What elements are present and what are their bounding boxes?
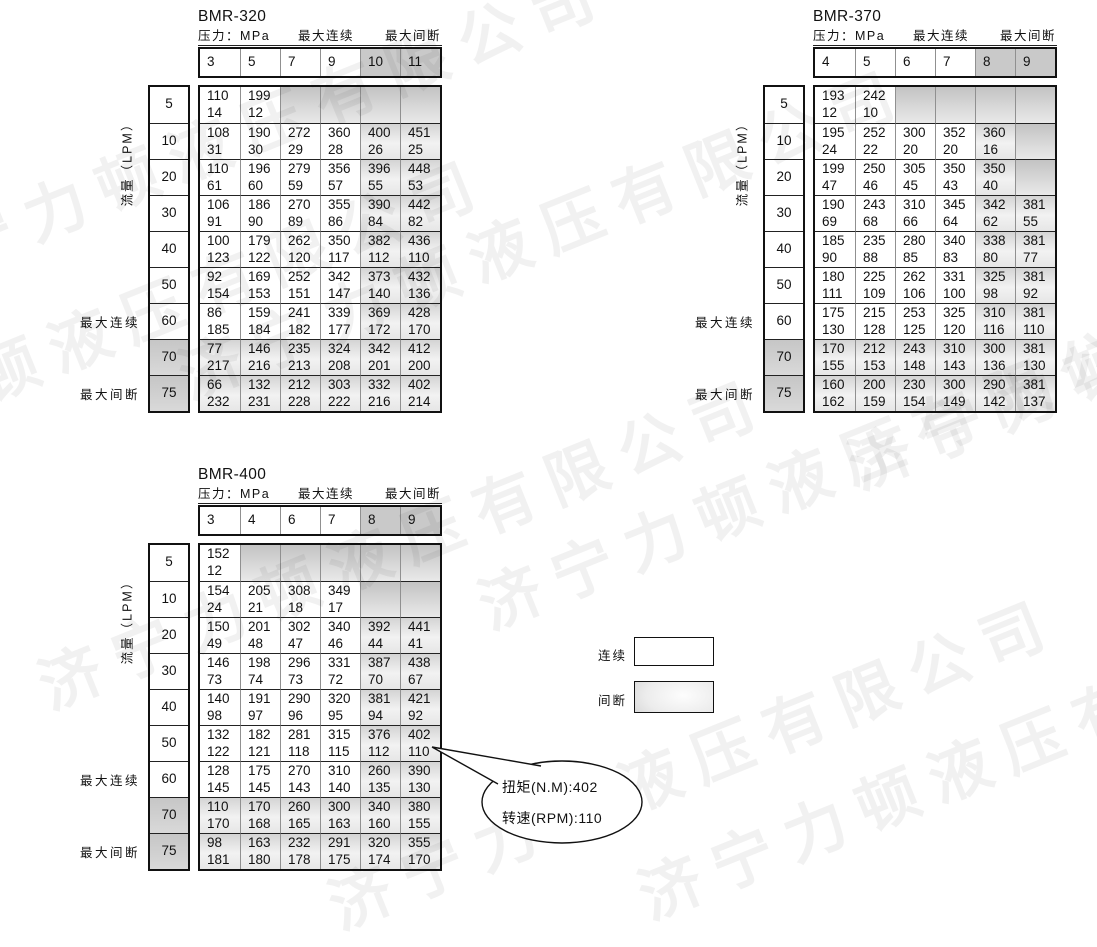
speed-value: 28 (328, 142, 360, 159)
torque-value: 262 (903, 269, 935, 286)
torque-value: 198 (248, 655, 280, 672)
speed-value: 213 (288, 358, 320, 375)
speed-value: 69 (822, 214, 855, 231)
data-cell: 373140 (360, 267, 400, 303)
torque-value: 260 (288, 799, 320, 816)
data-cell: 170168 (240, 797, 280, 833)
speed-value: 109 (863, 286, 895, 303)
data-cell: 28085 (895, 231, 935, 267)
speed-value: 130 (822, 322, 855, 339)
data-cell: 15049 (200, 617, 240, 653)
torque-value: 381 (368, 691, 400, 708)
speed-value: 44 (368, 636, 400, 653)
data-cell: 320174 (360, 833, 400, 869)
torque-value: 381 (1023, 269, 1055, 286)
pressure-cell: 8 (975, 49, 1015, 76)
speed-value: 90 (822, 250, 855, 267)
data-cell: 200159 (855, 375, 895, 411)
torque-value: 169 (248, 269, 280, 286)
table-title: BMR-400 (198, 466, 266, 484)
pressure-unit-label: 压力：MPa (813, 25, 885, 44)
table-title: BMR-320 (198, 8, 266, 26)
torque-value: 448 (408, 161, 440, 178)
torque-value: 339 (328, 305, 360, 322)
speed-value: 170 (408, 852, 440, 869)
speed-value: 66 (903, 214, 935, 231)
speed-value: 147 (328, 286, 360, 303)
data-cell: 303222 (320, 375, 360, 411)
pressure-cell: 8 (360, 507, 400, 534)
flow-cell: 30 (150, 653, 188, 689)
data-cell: 34262 (975, 195, 1015, 231)
speed-value: 106 (903, 286, 935, 303)
table-header-labels: 压力：MPa最大连续最大间断 (813, 28, 1057, 46)
speed-value: 100 (943, 286, 975, 303)
speed-value: 47 (288, 636, 320, 653)
flow-axis-label: 流量（LPM） (117, 545, 136, 695)
pressure-header-row: 346789 (198, 505, 442, 536)
data-cell: 32598 (975, 267, 1015, 303)
speed-value: 20 (943, 142, 975, 159)
speed-value: 170 (408, 322, 440, 339)
torque-value: 106 (207, 197, 240, 214)
torque-value: 110 (207, 799, 240, 816)
torque-value: 235 (288, 341, 320, 358)
data-cell: 260165 (280, 797, 320, 833)
data-cell: 27089 (280, 195, 320, 231)
data-cell: 315115 (320, 725, 360, 761)
flow-cell: 40 (150, 689, 188, 725)
speed-value: 153 (248, 286, 280, 303)
data-cell: 19069 (815, 195, 855, 231)
data-cell: 44141 (400, 617, 440, 653)
data-cell: 260135 (360, 761, 400, 797)
bmr-320-table: BMR-320压力：MPa最大连续最大间断3579101151020304050… (148, 8, 444, 420)
data-cell: 179122 (240, 231, 280, 267)
torque-value: 243 (863, 197, 895, 214)
data-cell: 19524 (815, 123, 855, 159)
torque-value: 381 (1023, 233, 1055, 250)
speed-value: 85 (903, 250, 935, 267)
legend-continuous-swatch (634, 637, 714, 666)
speed-value: 91 (207, 214, 240, 231)
torque-value: 428 (408, 305, 440, 322)
speed-value: 125 (903, 322, 935, 339)
speed-value: 112 (368, 744, 400, 761)
data-cell: 300136 (975, 339, 1015, 375)
data-cell: 253125 (895, 303, 935, 339)
data-cell: 252151 (280, 267, 320, 303)
flow-cell: 30 (150, 195, 188, 231)
speed-value: 160 (368, 816, 400, 833)
torque-value: 441 (408, 619, 440, 636)
data-cell: 339177 (320, 303, 360, 339)
data-cell: 19947 (815, 159, 855, 195)
speed-value: 55 (1023, 214, 1055, 231)
data-cell: 39084 (360, 195, 400, 231)
torque-value: 290 (983, 377, 1015, 394)
pressure-cell: 11 (400, 49, 440, 76)
speed-value: 121 (248, 744, 280, 761)
data-cell: 45125 (400, 123, 440, 159)
speed-value: 10 (863, 105, 895, 122)
torque-value: 331 (328, 655, 360, 672)
speed-value: 214 (408, 394, 440, 411)
data-cell: 241182 (280, 303, 320, 339)
data-cell: 38177 (1015, 231, 1055, 267)
torque-value: 270 (288, 763, 320, 780)
speed-value: 21 (248, 600, 280, 617)
speed-value: 155 (408, 816, 440, 833)
data-cell-empty (1015, 123, 1055, 159)
data-cell: 39244 (360, 617, 400, 653)
speed-value: 24 (822, 142, 855, 159)
pressure-cell: 6 (895, 49, 935, 76)
data-cell: 14673 (200, 653, 240, 689)
torque-value: 392 (368, 619, 400, 636)
speed-value: 12 (822, 105, 855, 122)
torque-value: 252 (863, 125, 895, 142)
torque-value: 438 (408, 655, 440, 672)
speed-value: 154 (903, 394, 935, 411)
speed-value: 46 (863, 178, 895, 195)
torque-value: 345 (943, 197, 975, 214)
torque-value: 159 (248, 305, 280, 322)
max-continuous-label: 最大连续 (298, 483, 354, 502)
speed-value: 57 (328, 178, 360, 195)
pressure-cell: 4 (815, 49, 855, 76)
max-intermittent-label: 最大间断 (385, 25, 441, 44)
torque-value: 300 (903, 125, 935, 142)
torque-value: 66 (207, 377, 240, 394)
torque-value: 332 (368, 377, 400, 394)
torque-value: 381 (1023, 305, 1055, 322)
data-cell: 19912 (240, 87, 280, 123)
flow-cell: 5 (150, 545, 188, 581)
torque-value: 451 (408, 125, 440, 142)
data-cell: 212153 (855, 339, 895, 375)
speed-value: 120 (288, 250, 320, 267)
data-cell: 34917 (320, 581, 360, 617)
data-cell: 159184 (240, 303, 280, 339)
data-cell: 38192 (1015, 267, 1055, 303)
speed-value: 185 (207, 322, 240, 339)
speed-value: 64 (943, 214, 975, 231)
data-cell: 402214 (400, 375, 440, 411)
speed-value: 117 (328, 250, 360, 267)
data-cell: 232178 (280, 833, 320, 869)
speed-value: 231 (248, 394, 280, 411)
speed-value: 174 (368, 852, 400, 869)
bmr-400-table: BMR-400压力：MPa最大连续最大间断3467895102030405060… (148, 466, 444, 878)
speed-value: 111 (822, 286, 855, 303)
speed-value: 29 (288, 142, 320, 159)
speed-value: 41 (408, 636, 440, 653)
data-cell: 381130 (1015, 339, 1055, 375)
data-cell: 332216 (360, 375, 400, 411)
data-cell: 243148 (895, 339, 935, 375)
data-cell: 39655 (360, 159, 400, 195)
torque-value: 154 (207, 583, 240, 600)
data-cell: 310140 (320, 761, 360, 797)
torque-value: 356 (328, 161, 360, 178)
data-cell: 350117 (320, 231, 360, 267)
data-cell-empty (360, 581, 400, 617)
speed-value: 130 (1023, 358, 1055, 375)
data-cell-empty (240, 545, 280, 581)
flow-header-column: 51020304050607075 (148, 85, 190, 413)
torque-value: 308 (288, 583, 320, 600)
torque-value: 380 (408, 799, 440, 816)
data-cell: 432136 (400, 267, 440, 303)
bmr-370-table: BMR-370压力：MPa最大连续最大间断4567895102030405060… (763, 8, 1059, 420)
torque-value: 190 (822, 197, 855, 214)
speed-value: 95 (328, 708, 360, 725)
torque-value: 280 (903, 233, 935, 250)
torque-value: 381 (1023, 341, 1055, 358)
data-cell: 175145 (240, 761, 280, 797)
torque-value: 150 (207, 619, 240, 636)
data-cell-empty (400, 545, 440, 581)
torque-value: 376 (368, 727, 400, 744)
torque-value: 110 (207, 88, 240, 105)
torque-value: 86 (207, 305, 240, 322)
max-continuous-marker: 最大连续 (56, 770, 140, 789)
torque-value: 302 (288, 619, 320, 636)
flow-cell: 75 (150, 375, 188, 411)
data-cell: 10691 (200, 195, 240, 231)
torque-value: 100 (207, 233, 240, 250)
torque-value: 241 (288, 305, 320, 322)
flow-cell: 70 (150, 797, 188, 833)
pressure-unit-label: 压力：MPa (198, 25, 270, 44)
torque-value: 250 (863, 161, 895, 178)
data-cell: 32095 (320, 689, 360, 725)
data-cell: 33172 (320, 653, 360, 689)
speed-value: 123 (207, 250, 240, 267)
torque-value: 179 (248, 233, 280, 250)
flow-header-column: 51020304050607075 (763, 85, 805, 413)
data-cell-empty (975, 87, 1015, 123)
pressure-cell: 7 (280, 49, 320, 76)
torque-value: 360 (328, 125, 360, 142)
speed-value: 55 (368, 178, 400, 195)
flow-cell: 5 (765, 87, 803, 123)
data-cell: 30247 (280, 617, 320, 653)
speed-value: 61 (207, 178, 240, 195)
data-cell: 35043 (935, 159, 975, 195)
flow-cell: 60 (765, 303, 803, 339)
torque-value: 152 (207, 546, 240, 563)
data-cell-empty (360, 545, 400, 581)
speed-value: 12 (207, 563, 240, 580)
data-cell: 19312 (815, 87, 855, 123)
data-cell: 30818 (280, 581, 320, 617)
torque-value: 310 (328, 763, 360, 780)
data-grid: 1931224210195242522230020352203601619947… (813, 85, 1057, 413)
data-cell: 376112 (360, 725, 400, 761)
speed-value: 98 (983, 286, 1015, 303)
data-cell: 310143 (935, 339, 975, 375)
torque-value: 340 (943, 233, 975, 250)
speed-value: 175 (328, 852, 360, 869)
data-cell: 340160 (360, 797, 400, 833)
torque-value: 242 (863, 88, 895, 105)
speed-value: 48 (248, 636, 280, 653)
pressure-cell: 4 (240, 507, 280, 534)
torque-value: 262 (288, 233, 320, 250)
speed-value: 70 (368, 672, 400, 689)
torque-value: 140 (207, 691, 240, 708)
flow-cell: 60 (150, 761, 188, 797)
data-cell: 44282 (400, 195, 440, 231)
speed-value: 151 (288, 286, 320, 303)
torque-value: 320 (368, 835, 400, 852)
speed-value: 148 (903, 358, 935, 375)
speed-value: 12 (248, 105, 280, 122)
data-cell: 38770 (360, 653, 400, 689)
flow-cell: 70 (765, 339, 803, 375)
speed-value: 153 (863, 358, 895, 375)
torque-value: 232 (288, 835, 320, 852)
torque-value: 310 (943, 341, 975, 358)
pressure-cell: 10 (360, 49, 400, 76)
data-cell: 35657 (320, 159, 360, 195)
flow-cell: 5 (150, 87, 188, 123)
pressure-cell: 3 (200, 49, 240, 76)
speed-value: 43 (943, 178, 975, 195)
data-cell: 34564 (935, 195, 975, 231)
torque-value: 300 (983, 341, 1015, 358)
pressure-cell: 5 (855, 49, 895, 76)
max-intermittent-marker: 最大间断 (671, 384, 755, 403)
data-cell: 11014 (200, 87, 240, 123)
speed-value: 14 (207, 105, 240, 122)
torque-value: 272 (288, 125, 320, 142)
speed-value: 216 (368, 394, 400, 411)
speed-value: 170 (207, 816, 240, 833)
speed-value: 94 (368, 708, 400, 725)
data-cell: 18590 (815, 231, 855, 267)
speed-value: 143 (943, 358, 975, 375)
data-cell: 428170 (400, 303, 440, 339)
torque-value: 373 (368, 269, 400, 286)
speed-value: 40 (983, 178, 1015, 195)
speed-value: 73 (207, 672, 240, 689)
legend-intermittent-label: 间断 (598, 690, 627, 709)
torque-value: 381 (1023, 197, 1055, 214)
torque-value: 432 (408, 269, 440, 286)
data-cell: 14098 (200, 689, 240, 725)
data-cell: 42192 (400, 689, 440, 725)
data-cell: 20148 (240, 617, 280, 653)
torque-value: 281 (288, 727, 320, 744)
speed-value: 165 (288, 816, 320, 833)
data-cell: 31066 (895, 195, 935, 231)
torque-value: 212 (863, 341, 895, 358)
watermark-text: 济宁力顿液压有限公司 (623, 561, 1097, 937)
data-cell: 66232 (200, 375, 240, 411)
flow-cell: 10 (150, 581, 188, 617)
torque-value: 212 (288, 377, 320, 394)
legend-intermittent-swatch (634, 681, 714, 713)
data-cell: 436110 (400, 231, 440, 267)
data-cell: 291175 (320, 833, 360, 869)
torque-value: 253 (903, 305, 935, 322)
flow-cell: 40 (765, 231, 803, 267)
data-cell: 342201 (360, 339, 400, 375)
data-cell: 25046 (855, 159, 895, 195)
torque-value: 324 (328, 341, 360, 358)
data-cell: 128145 (200, 761, 240, 797)
table-header-labels: 压力：MPa最大连续最大间断 (198, 486, 442, 504)
data-cell: 98181 (200, 833, 240, 869)
data-cell: 225109 (855, 267, 895, 303)
flow-cell: 70 (150, 339, 188, 375)
data-grid: 1101419912108311903027229360284002645125… (198, 85, 442, 413)
data-cell-empty (1015, 87, 1055, 123)
data-cell: 262120 (280, 231, 320, 267)
torque-value: 402 (408, 377, 440, 394)
legend-continuous-label: 连续 (598, 645, 627, 664)
speed-value: 22 (863, 142, 895, 159)
torque-value: 349 (328, 583, 360, 600)
max-intermittent-label: 最大间断 (385, 483, 441, 502)
speed-value: 182 (288, 322, 320, 339)
flow-cell: 50 (150, 725, 188, 761)
torque-value: 421 (408, 691, 440, 708)
data-cell: 300149 (935, 375, 975, 411)
data-cell: 163180 (240, 833, 280, 869)
data-cell: 290142 (975, 375, 1015, 411)
data-cell-empty (935, 87, 975, 123)
torque-value: 180 (822, 269, 855, 286)
data-cell: 170155 (815, 339, 855, 375)
data-cell: 169153 (240, 267, 280, 303)
torque-value: 128 (207, 763, 240, 780)
speed-value: 24 (207, 600, 240, 617)
speed-value: 31 (207, 142, 240, 159)
speed-value: 128 (863, 322, 895, 339)
torque-value: 186 (248, 197, 280, 214)
torque-value: 390 (408, 763, 440, 780)
speed-value: 178 (288, 852, 320, 869)
data-cell: 24368 (855, 195, 895, 231)
speed-value: 222 (328, 394, 360, 411)
data-cell: 19874 (240, 653, 280, 689)
speed-value: 26 (368, 142, 400, 159)
speed-value: 53 (408, 178, 440, 195)
data-cell: 146216 (240, 339, 280, 375)
speed-value: 84 (368, 214, 400, 231)
speed-value: 162 (822, 394, 855, 411)
speed-value: 62 (983, 214, 1015, 231)
speed-value: 49 (207, 636, 240, 653)
speed-value: 159 (863, 394, 895, 411)
data-cell: 30020 (895, 123, 935, 159)
torque-value: 342 (328, 269, 360, 286)
data-cell: 25222 (855, 123, 895, 159)
torque-value: 338 (983, 233, 1015, 250)
speed-value: 88 (863, 250, 895, 267)
data-cell: 19197 (240, 689, 280, 725)
torque-value: 291 (328, 835, 360, 852)
data-cell: 36028 (320, 123, 360, 159)
speed-value: 201 (368, 358, 400, 375)
data-cell: 270143 (280, 761, 320, 797)
data-cell-empty (360, 87, 400, 123)
speed-value: 80 (983, 250, 1015, 267)
